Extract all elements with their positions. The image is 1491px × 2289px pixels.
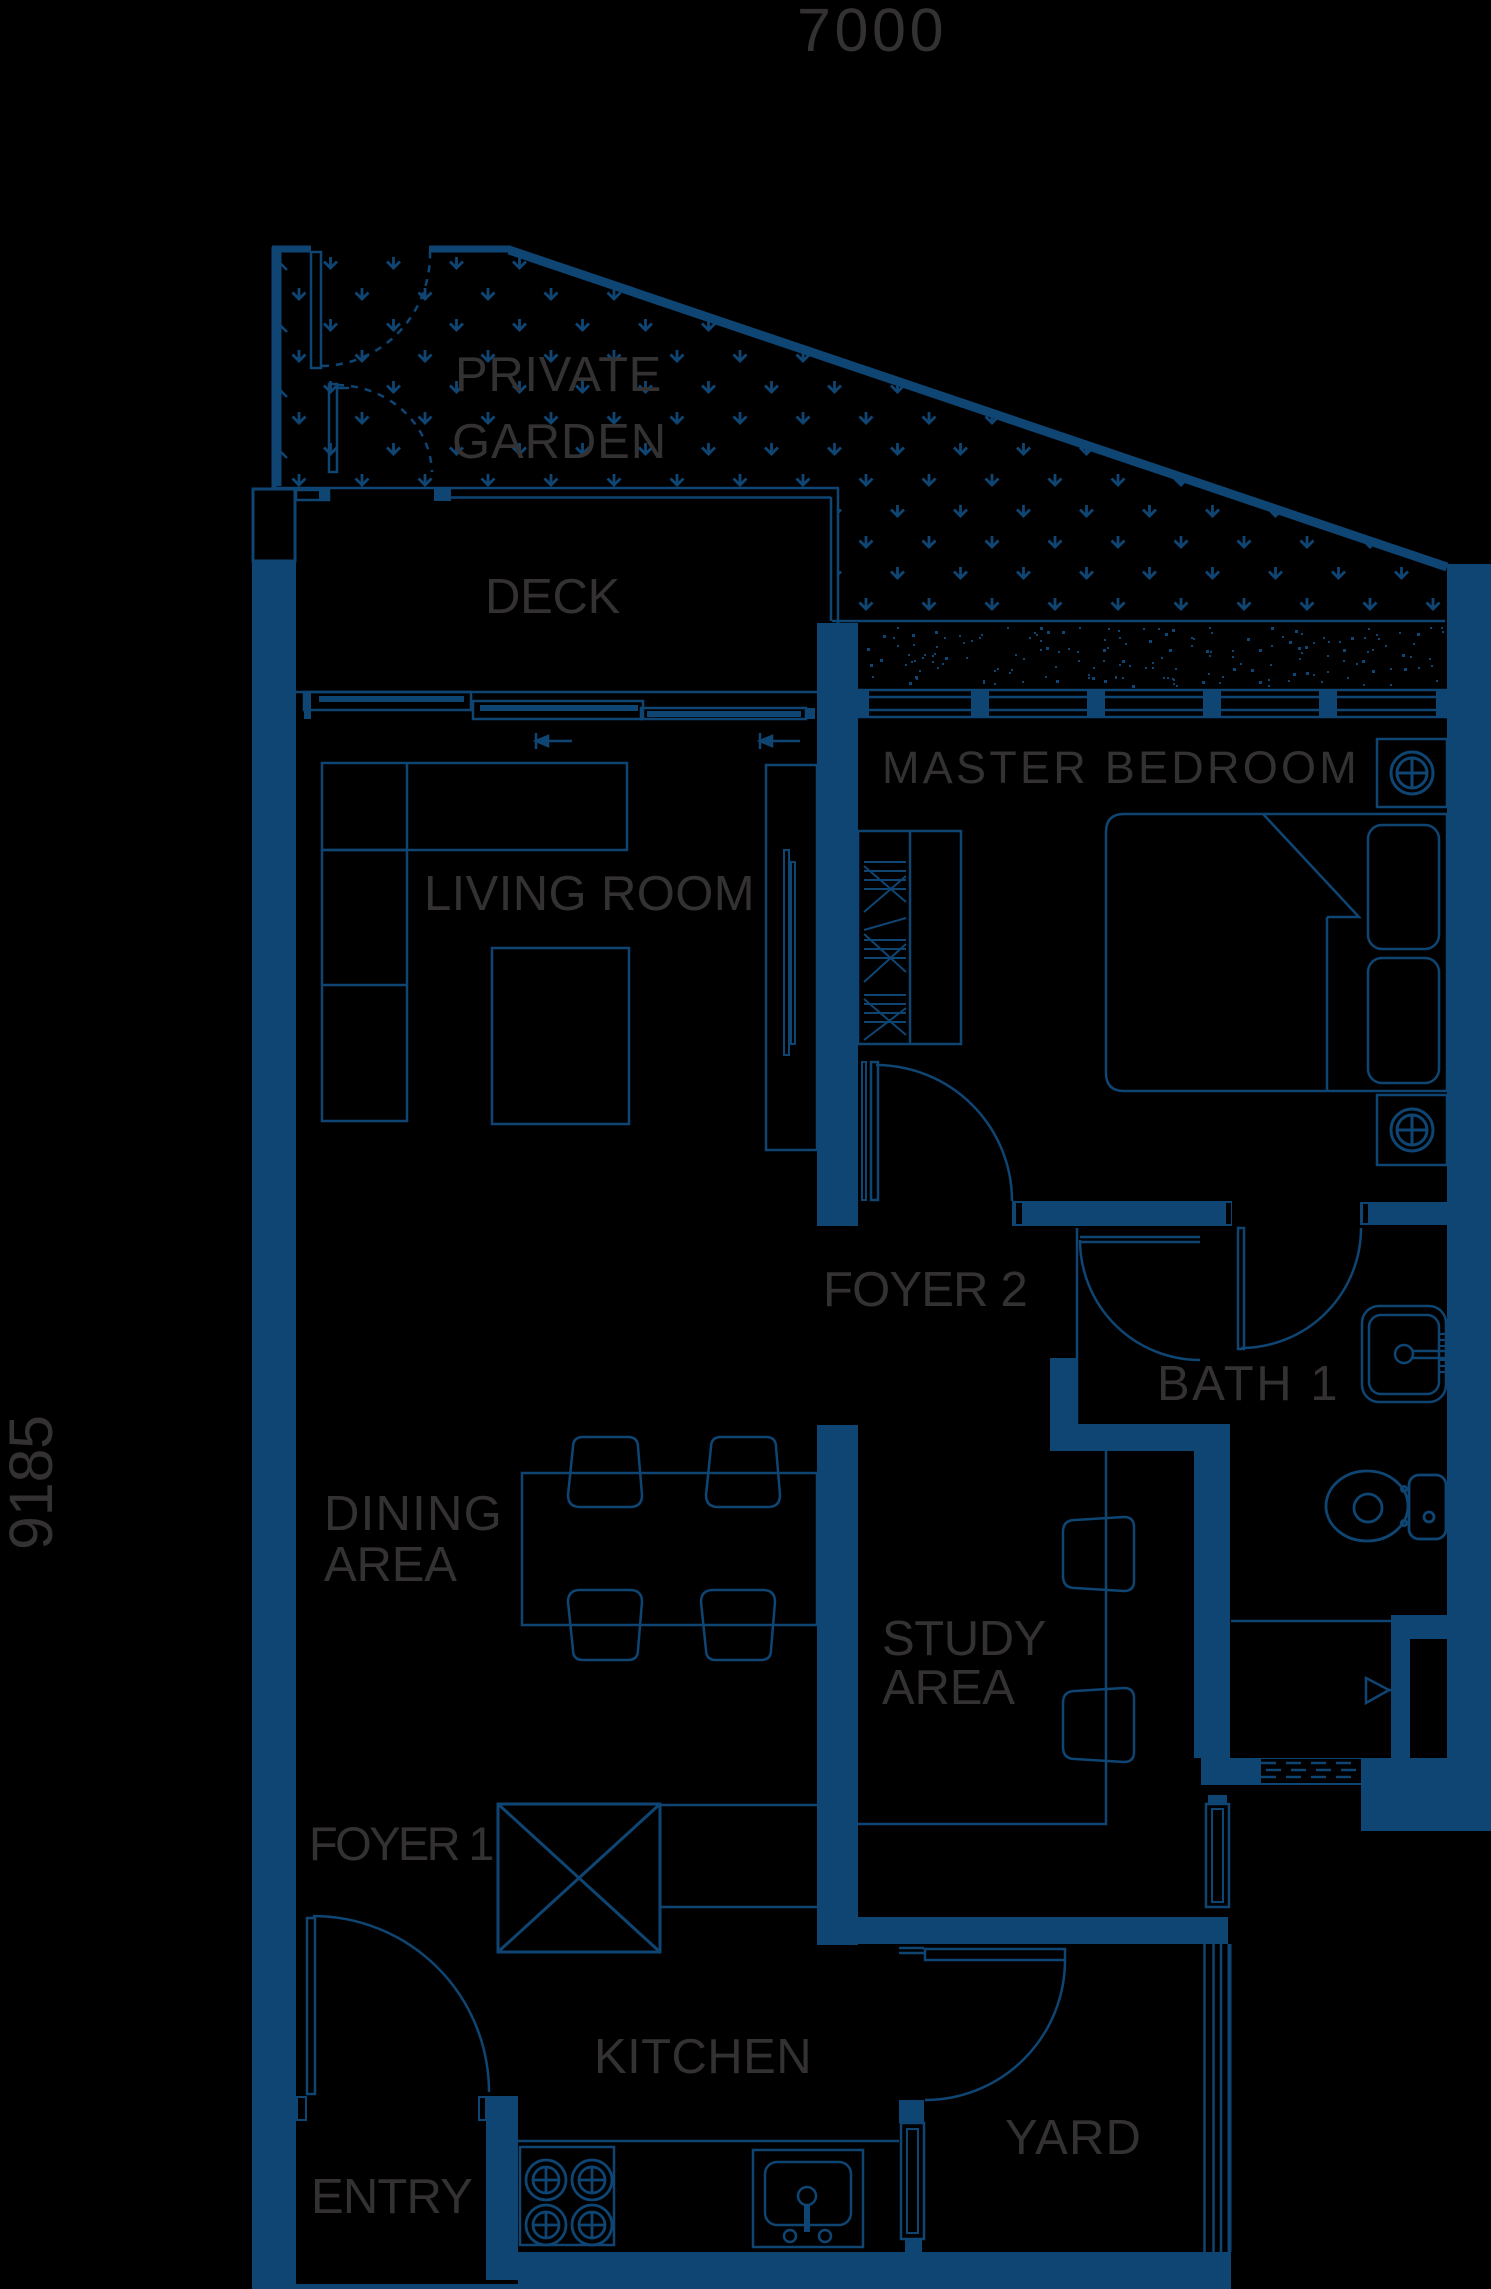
svg-text:ENTRY: ENTRY xyxy=(311,2170,472,2224)
svg-text:BATH 1: BATH 1 xyxy=(1157,1357,1340,1411)
svg-text:FOYER 2: FOYER 2 xyxy=(823,1263,1027,1317)
svg-text:FOYER 1: FOYER 1 xyxy=(309,1817,492,1870)
svg-text:9185: 9185 xyxy=(0,1415,65,1550)
svg-text:KITCHEN: KITCHEN xyxy=(594,2030,812,2084)
svg-text:AREA: AREA xyxy=(882,1661,1015,1715)
svg-text:DINING: DINING xyxy=(324,1487,503,1541)
svg-text:AREA: AREA xyxy=(324,1538,457,1592)
svg-text:LIVING ROOM: LIVING ROOM xyxy=(424,867,755,921)
svg-text:MASTER BEDROOM: MASTER BEDROOM xyxy=(882,742,1360,793)
svg-text:DECK: DECK xyxy=(485,570,621,624)
svg-text:GARDEN: GARDEN xyxy=(452,415,667,469)
svg-text:YARD: YARD xyxy=(1005,2111,1142,2165)
svg-text:PRIVATE: PRIVATE xyxy=(455,348,662,402)
svg-text:STUDY: STUDY xyxy=(882,1612,1046,1666)
svg-text:7000: 7000 xyxy=(797,0,947,64)
